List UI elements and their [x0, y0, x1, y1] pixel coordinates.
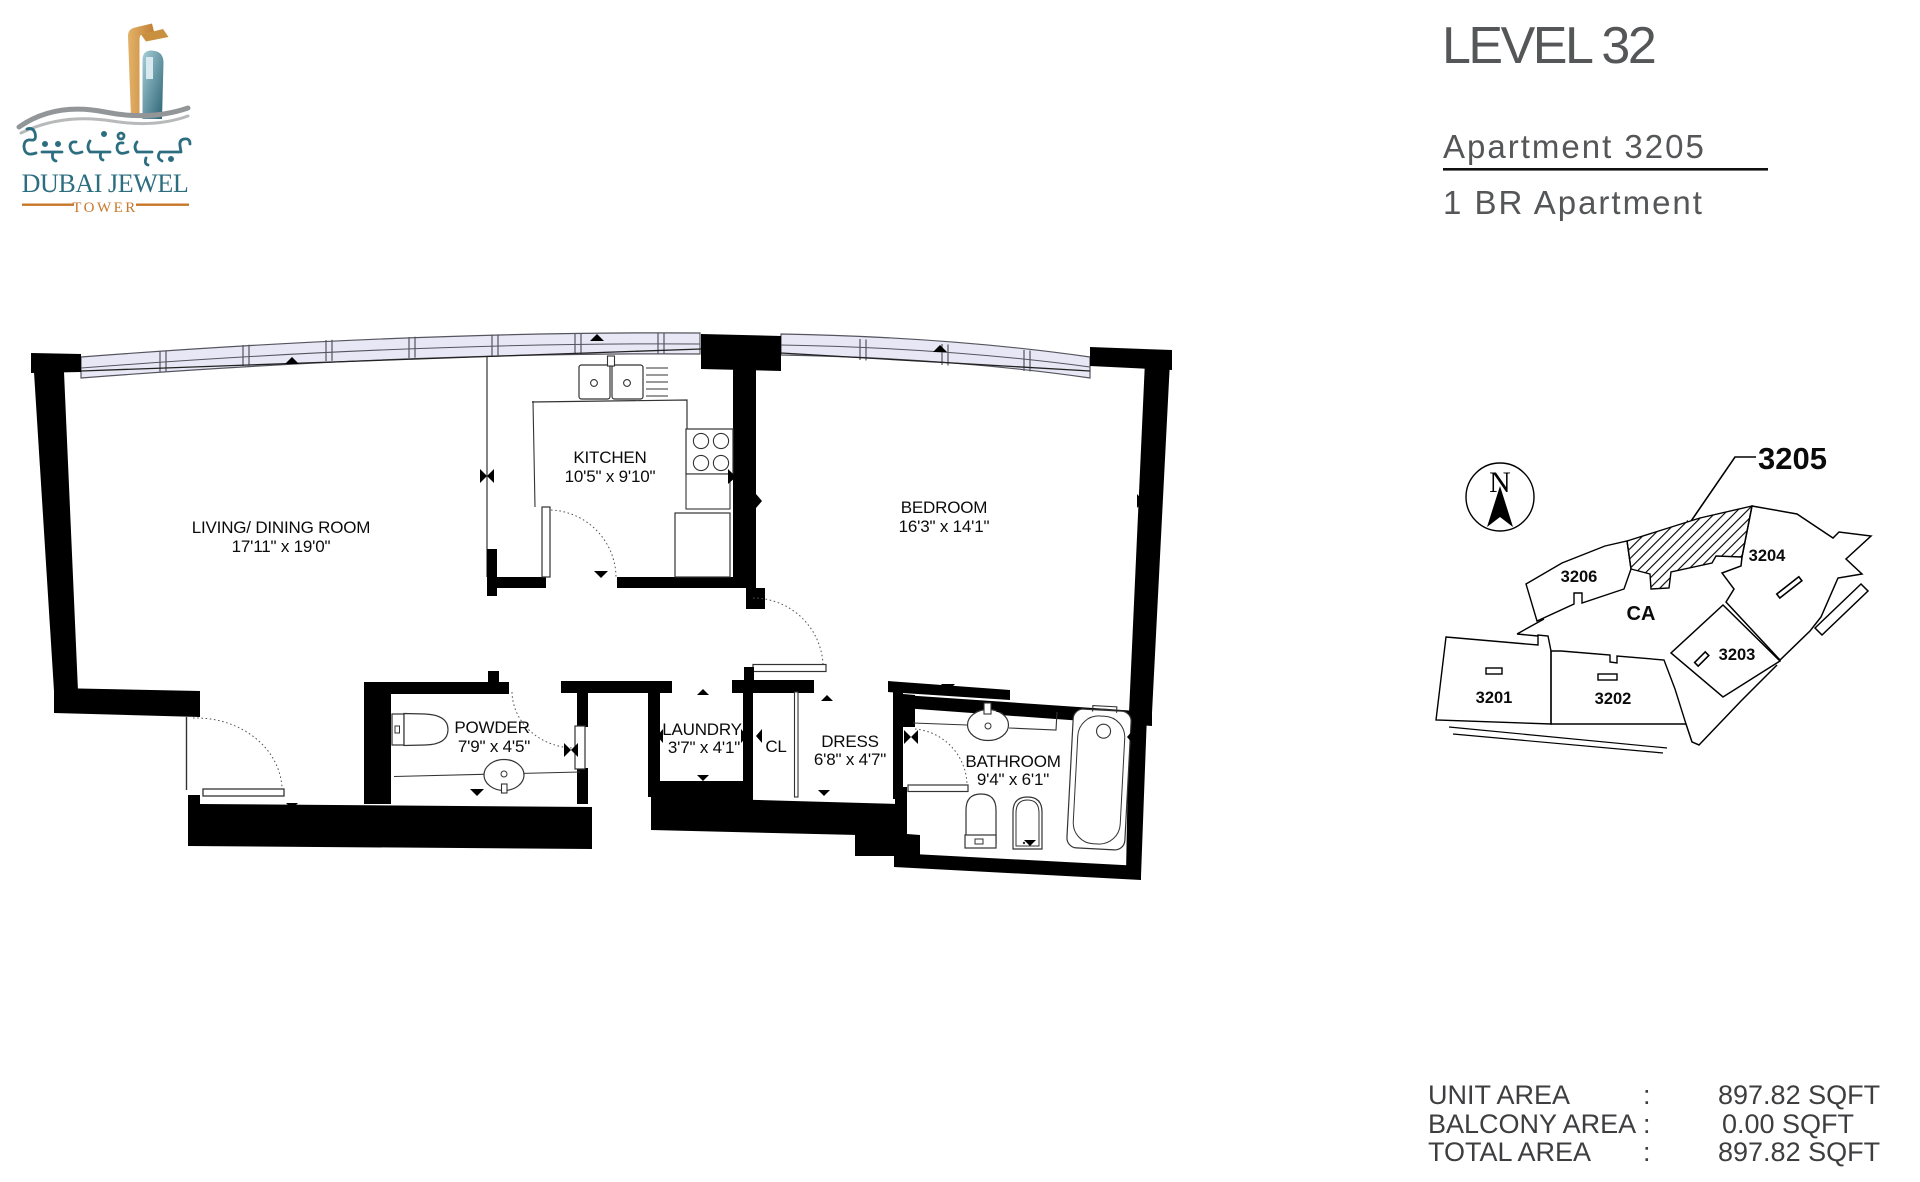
svg-text:BEDROOM: BEDROOM: [901, 498, 987, 517]
svg-text:KITCHEN: KITCHEN: [573, 448, 646, 467]
svg-text:3205: 3205: [1758, 441, 1827, 476]
svg-text:9'4" x 6'1": 9'4" x 6'1": [977, 770, 1049, 789]
svg-text:BATHROOM: BATHROOM: [965, 752, 1060, 771]
svg-text:TOWER: TOWER: [72, 200, 138, 216]
svg-text:3202: 3202: [1595, 690, 1632, 708]
svg-text:3206: 3206: [1561, 568, 1598, 586]
svg-text:0.00 SQFT: 0.00 SQFT: [1722, 1109, 1854, 1139]
svg-text:3'7" x 4'1": 3'7" x 4'1": [668, 738, 740, 757]
svg-text:3201: 3201: [1476, 689, 1513, 707]
svg-text::: :: [1643, 1109, 1651, 1139]
svg-text:897.82 SQFT: 897.82 SQFT: [1718, 1137, 1880, 1167]
svg-text::: :: [1643, 1137, 1651, 1167]
svg-text:7'9" x 4'5": 7'9" x 4'5": [458, 737, 530, 756]
svg-text:3204: 3204: [1749, 547, 1787, 565]
svg-text::: :: [1643, 1080, 1651, 1110]
svg-text:16'3" x 14'1": 16'3" x 14'1": [899, 517, 990, 536]
svg-text:6'8" x 4'7": 6'8" x 4'7": [814, 750, 886, 769]
svg-text:BALCONY AREA: BALCONY AREA: [1428, 1109, 1636, 1139]
svg-text:LAUNDRY: LAUNDRY: [662, 720, 742, 739]
svg-text:LIVING/ DINING ROOM: LIVING/ DINING ROOM: [192, 518, 371, 537]
svg-text:LEVEL 32: LEVEL 32: [1442, 17, 1655, 75]
svg-text:TOTAL AREA: TOTAL AREA: [1428, 1137, 1591, 1167]
svg-text:CL: CL: [765, 737, 786, 756]
svg-text:10'5" x 9'10": 10'5" x 9'10": [565, 467, 656, 486]
svg-text:897.82 SQFT: 897.82 SQFT: [1718, 1080, 1880, 1110]
svg-text:DUBAI JEWEL: DUBAI JEWEL: [22, 169, 189, 198]
svg-text:CA: CA: [1627, 603, 1656, 625]
svg-text:DRESS: DRESS: [821, 732, 879, 751]
svg-text:Apartment 3205: Apartment 3205: [1443, 128, 1706, 165]
svg-text:3203: 3203: [1719, 646, 1756, 664]
svg-text:POWDER: POWDER: [454, 718, 529, 737]
svg-text:17'11" x 19'0": 17'11" x 19'0": [232, 537, 331, 556]
svg-text:1 BR Apartment: 1 BR Apartment: [1443, 184, 1704, 221]
svg-text:UNIT AREA: UNIT AREA: [1428, 1080, 1570, 1110]
